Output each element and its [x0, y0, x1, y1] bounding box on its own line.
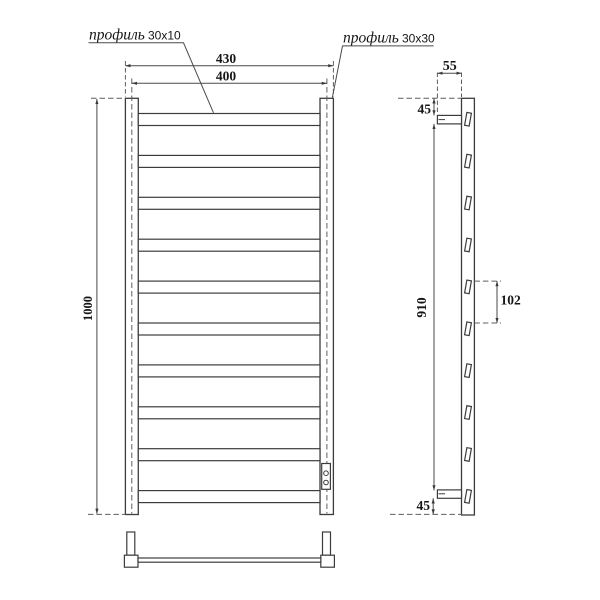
- svg-text:910: 910: [414, 297, 429, 318]
- svg-text:30х10: 30х10: [148, 29, 181, 43]
- svg-text:102: 102: [501, 293, 522, 308]
- svg-text:30х30: 30х30: [402, 32, 435, 46]
- svg-text:55: 55: [443, 59, 457, 74]
- svg-text:430: 430: [216, 51, 237, 66]
- svg-text:профиль: профиль: [343, 30, 399, 47]
- svg-text:профиль: профиль: [89, 27, 145, 44]
- svg-text:45: 45: [417, 498, 431, 513]
- svg-text:1000: 1000: [81, 296, 95, 321]
- svg-text:400: 400: [216, 69, 237, 84]
- svg-text:45: 45: [418, 102, 432, 117]
